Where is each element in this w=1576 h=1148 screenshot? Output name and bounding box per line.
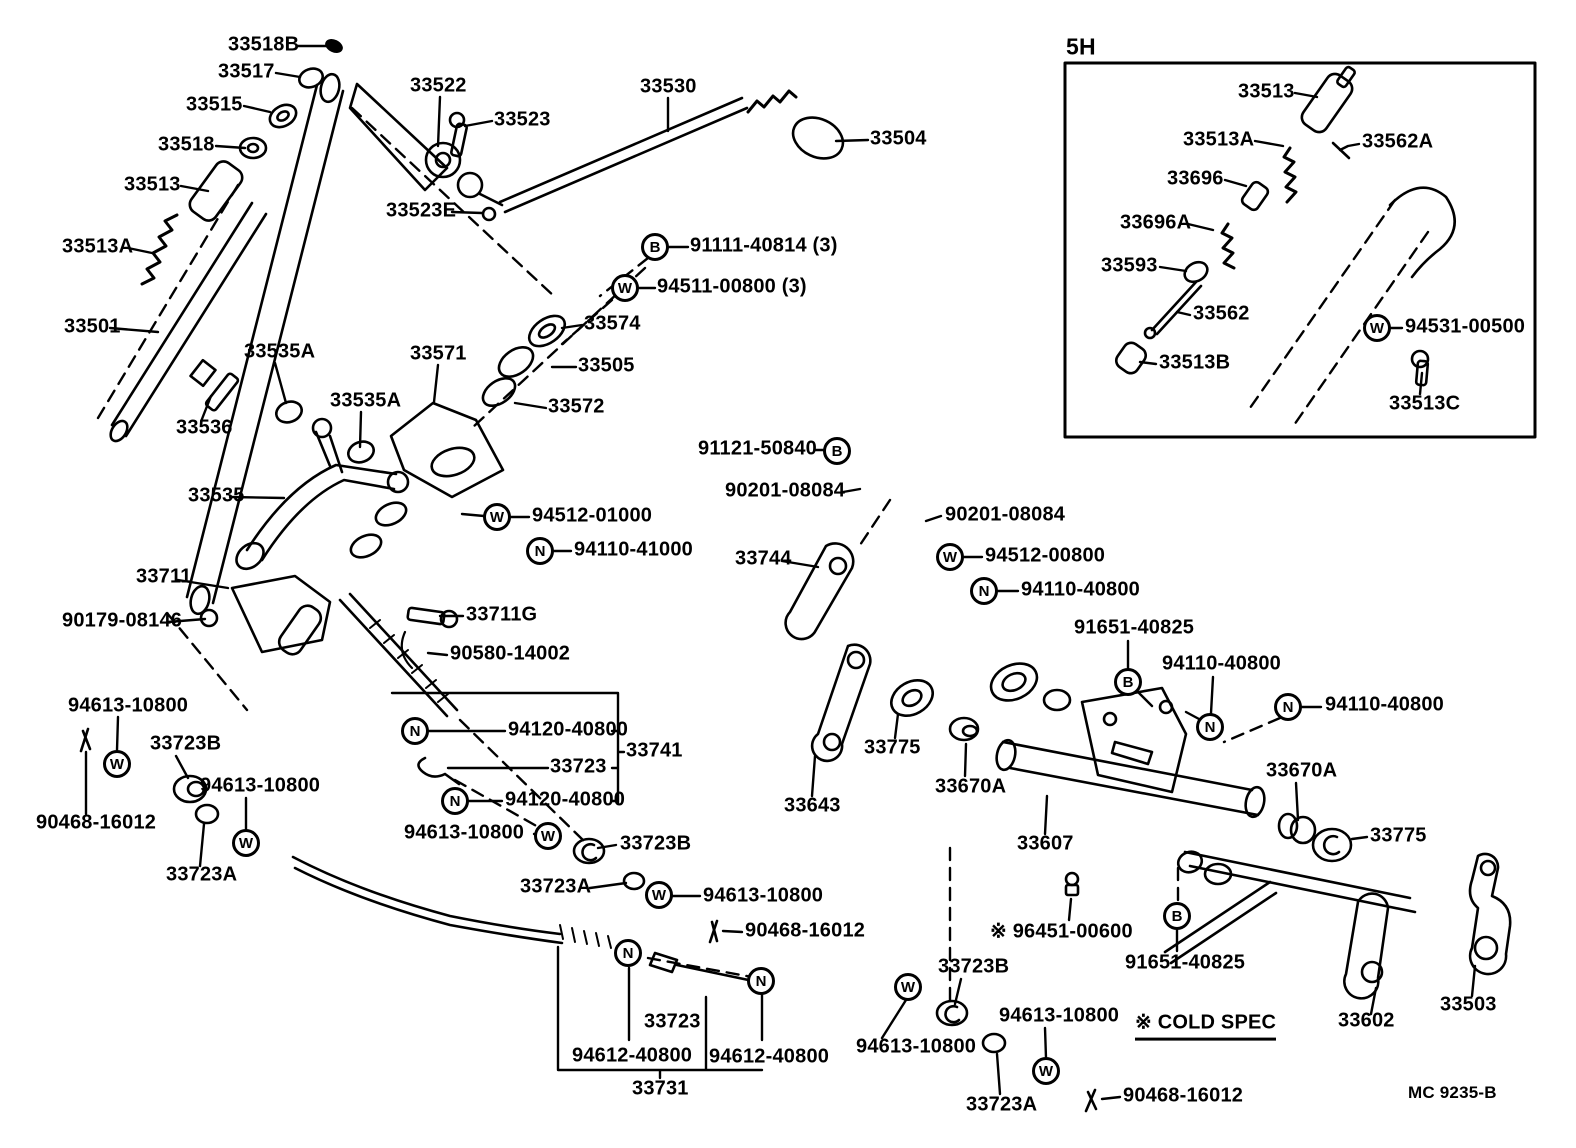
- part-number-label: 33723B: [620, 833, 691, 856]
- part-number-label: 94613-10800: [404, 822, 524, 845]
- part-number-label: 90468-16012: [1123, 1085, 1243, 1108]
- part-number-label: 90179-08146: [62, 610, 182, 633]
- part-number-label: 33723: [644, 1011, 701, 1034]
- part-number-label: 33513: [1238, 81, 1295, 104]
- fastener-badge-n: N: [747, 967, 775, 995]
- part-number-label: 33505: [578, 355, 635, 378]
- part-number-label: 94613-10800: [856, 1036, 976, 1059]
- part-number-label: 33602: [1338, 1010, 1395, 1033]
- part-number-label: 91651-40825: [1125, 952, 1245, 975]
- part-number-label: 33522: [410, 75, 467, 98]
- fastener-badge-w: W: [645, 881, 673, 909]
- fastener-badge-b: B: [1114, 668, 1142, 696]
- part-number-label: 94612-40800: [572, 1045, 692, 1068]
- part-number-label: 94613-10800: [68, 695, 188, 718]
- label-layer: 33518B3351733515335183351333513A33501335…: [0, 0, 1576, 1148]
- fastener-badge-n: N: [1196, 713, 1224, 741]
- part-number-label: 33536: [176, 417, 233, 440]
- fastener-badge-n: N: [526, 537, 554, 565]
- part-number-label: 33513C: [1389, 393, 1460, 416]
- part-number-label: 33523E: [386, 200, 456, 223]
- part-number-label: 33572: [548, 396, 605, 419]
- drawing-code: MC 9235-B: [1408, 1083, 1497, 1103]
- fastener-badge-w: W: [1032, 1057, 1060, 1085]
- fastener-badge-w: W: [1363, 314, 1391, 342]
- fastener-badge-w: W: [611, 274, 639, 302]
- part-number-label: 94120-40800: [508, 719, 628, 742]
- part-number-label: 94511-00800 (3): [657, 276, 807, 299]
- part-number-label: 33670A: [1266, 760, 1337, 783]
- cold-spec-note: ※ COLD SPEC: [1135, 1010, 1276, 1041]
- part-number-label: 33723A: [966, 1094, 1037, 1117]
- part-number-label: 33530: [640, 76, 697, 99]
- part-number-label: 33723: [550, 756, 607, 779]
- part-number-label: 33517: [218, 61, 275, 84]
- part-number-label: 94110-40800: [1021, 579, 1140, 602]
- part-number-label: 33523: [494, 109, 551, 132]
- part-number-label: 33513B: [1159, 352, 1230, 375]
- fastener-badge-w: W: [232, 829, 260, 857]
- part-number-label: 33593: [1101, 255, 1158, 278]
- part-number-label: 33723A: [520, 876, 591, 899]
- part-number-label: 33731: [632, 1078, 689, 1101]
- part-number-label: 33723B: [938, 956, 1009, 979]
- fastener-badge-w: W: [103, 750, 131, 778]
- part-number-label: 94531-00500: [1405, 316, 1525, 339]
- fastener-badge-w: W: [894, 973, 922, 1001]
- part-number-label: 33513A: [1183, 129, 1254, 152]
- fastener-badge-b: B: [823, 437, 851, 465]
- fastener-badge-n: N: [441, 787, 469, 815]
- part-number-label: 33513A: [62, 236, 133, 259]
- part-number-label: 33744: [735, 548, 792, 571]
- part-number-label: 94110-40800: [1325, 694, 1444, 717]
- part-number-label: 90201-08084: [725, 480, 845, 503]
- part-number-label: 33643: [784, 795, 841, 818]
- part-number-label: 33535A: [244, 341, 315, 364]
- part-number-label: 94613-10800: [200, 775, 320, 798]
- part-number-label: 90580-14002: [450, 643, 570, 666]
- part-number-label: 33504: [870, 128, 927, 151]
- part-number-label: 94110-41000: [574, 539, 693, 562]
- part-number-label: 90201-08084: [945, 504, 1065, 527]
- part-number-label: 94120-40800: [505, 789, 625, 812]
- part-number-label: 33501: [64, 316, 121, 339]
- part-number-label: 33696: [1167, 168, 1224, 191]
- part-number-label: 33723B: [150, 733, 221, 756]
- fastener-badge-w: W: [936, 543, 964, 571]
- part-number-label: 33723A: [166, 864, 237, 887]
- fastener-badge-n: N: [1274, 693, 1302, 721]
- part-number-label: 90468-16012: [745, 920, 865, 943]
- part-number-label: 94612-40800: [709, 1046, 829, 1069]
- part-number-label: ※ 96451-00600: [990, 919, 1133, 944]
- part-number-label: 33607: [1017, 833, 1074, 856]
- fastener-badge-n: N: [401, 717, 429, 745]
- part-number-label: 91121-50840: [698, 438, 817, 461]
- fastener-badge-b: B: [641, 233, 669, 261]
- part-number-label: 33535A: [330, 390, 401, 413]
- part-number-label: 33515: [186, 94, 243, 117]
- part-number-label: 33571: [410, 343, 467, 366]
- part-number-label: 33696A: [1120, 212, 1191, 235]
- part-number-label: 33518B: [228, 34, 299, 57]
- fastener-badge-n: N: [614, 939, 642, 967]
- fastener-badge-w: W: [483, 503, 511, 531]
- parts-diagram: 33518B3351733515335183351333513A33501335…: [0, 0, 1576, 1148]
- part-number-label: 91651-40825: [1074, 617, 1194, 640]
- fastener-badge-w: W: [534, 822, 562, 850]
- part-number-label: 33711: [136, 566, 192, 589]
- part-number-label: 33562: [1193, 303, 1250, 326]
- part-number-label: 33741: [626, 740, 683, 763]
- fastener-badge-b: B: [1163, 902, 1191, 930]
- part-number-label: 33562A: [1362, 131, 1433, 154]
- part-number-label: 94512-00800: [985, 545, 1105, 568]
- part-number-label: 33670A: [935, 776, 1006, 799]
- inset-title: 5H: [1066, 33, 1096, 60]
- part-number-label: 33518: [158, 134, 215, 157]
- part-number-label: 33503: [1440, 994, 1497, 1017]
- part-number-label: 94613-10800: [703, 885, 823, 908]
- part-number-label: 33775: [1370, 825, 1427, 848]
- fastener-badge-n: N: [970, 577, 998, 605]
- part-number-label: 33711G: [466, 604, 537, 627]
- part-number-label: 90468-16012: [36, 812, 156, 835]
- part-number-label: 33535: [188, 485, 245, 508]
- part-number-label: 94613-10800: [999, 1005, 1119, 1028]
- part-number-label: 94110-40800: [1162, 653, 1281, 676]
- part-number-label: 91111-40814 (3): [690, 235, 838, 258]
- part-number-label: 33775: [864, 737, 921, 760]
- part-number-label: 94512-01000: [532, 505, 652, 528]
- part-number-label: 33574: [584, 313, 641, 336]
- part-number-label: 33513: [124, 174, 181, 197]
